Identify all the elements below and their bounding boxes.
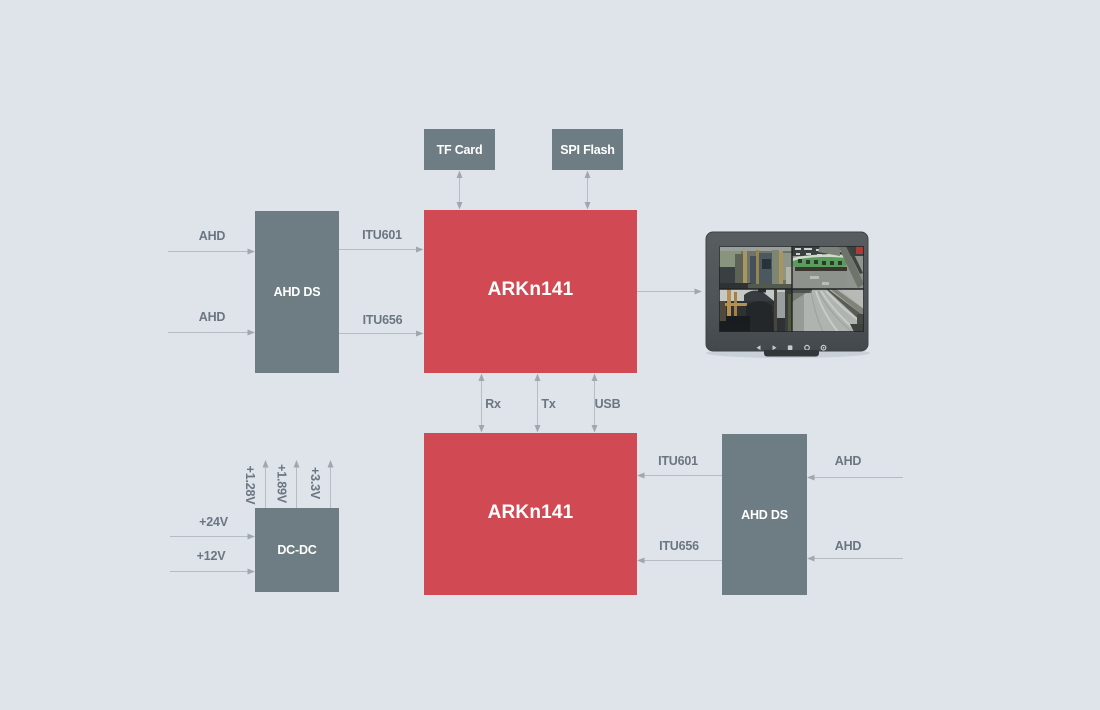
svg-text:+3.3V: +3.3V bbox=[308, 467, 322, 500]
svg-text:+1.89V: +1.89V bbox=[275, 464, 289, 504]
svg-text:+1.28V: +1.28V bbox=[243, 466, 257, 506]
